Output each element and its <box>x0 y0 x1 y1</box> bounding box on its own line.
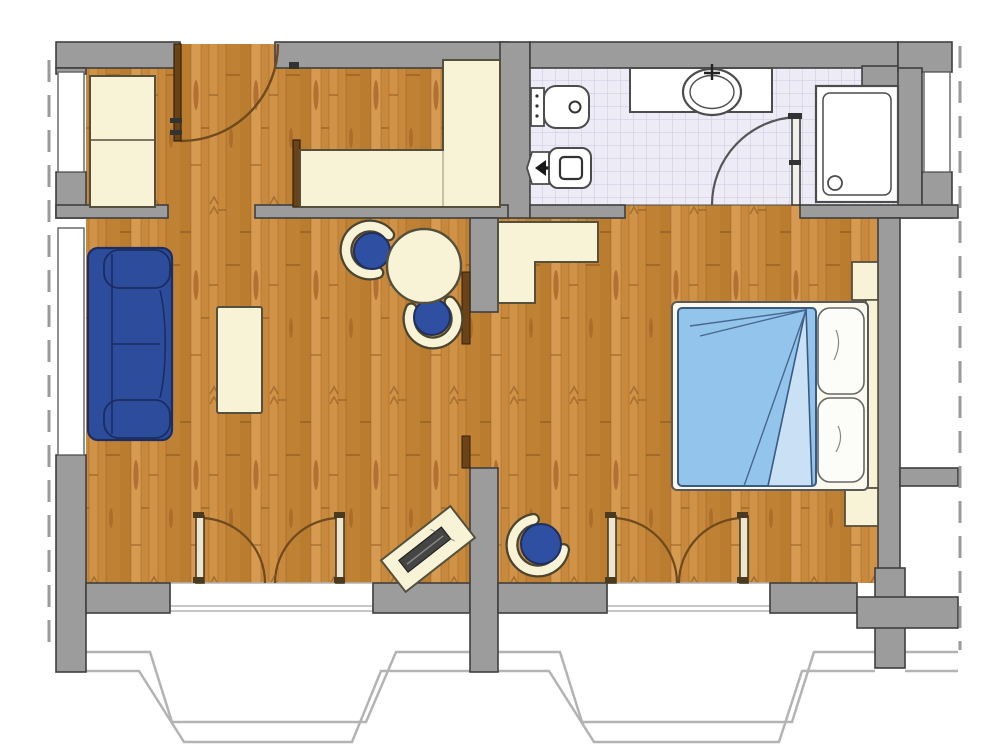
bidet <box>527 148 591 188</box>
bedroom-right-wall <box>878 218 900 600</box>
center-partition-upper-stub <box>470 218 498 312</box>
bathroom-doorway-floor <box>625 205 800 218</box>
left-window-lower <box>58 228 84 455</box>
right-bay-outer-line <box>498 652 875 722</box>
bedroom-door-left-leaf <box>608 516 616 583</box>
left-bay-outer-line <box>86 652 470 722</box>
floor-plan-page <box>0 0 1000 750</box>
sliding-leaf-lower <box>462 436 470 468</box>
vanity-counter <box>630 64 772 115</box>
neighbor-bay-lines <box>905 652 958 671</box>
toilet <box>531 86 589 128</box>
living-door-right-leaf <box>336 516 344 583</box>
living-balcony-threshold <box>170 583 373 611</box>
left-wall-lower <box>56 455 86 672</box>
bedroom-door-right-leaf <box>740 516 748 583</box>
bottom-wall-center <box>498 583 607 613</box>
pillow-top <box>818 308 864 394</box>
bottom-wall-right <box>770 583 857 613</box>
bathroom-left-wall <box>500 42 530 218</box>
top-wall-bathroom <box>530 42 898 68</box>
bay-windows <box>86 652 958 742</box>
bathroom-bottom-wall-right <box>800 205 958 218</box>
entrance-door-leaf <box>174 44 181 141</box>
round-dining-table <box>387 229 461 303</box>
shower-wall-jog <box>862 66 900 88</box>
shower-drain <box>828 176 842 190</box>
sofa-arm-bottom <box>104 400 170 438</box>
bathroom-bottom-wall-left <box>530 205 625 218</box>
headboard-step <box>852 262 878 300</box>
hall-door-frame-mark <box>289 62 299 69</box>
hall-door-leaf <box>293 140 300 207</box>
floor-plan-canvas <box>0 0 1000 750</box>
nightstand <box>845 488 878 526</box>
living-door-left-leaf <box>196 516 204 583</box>
right-side-wall-band <box>900 468 958 486</box>
right-window-upper <box>924 72 950 172</box>
bedroom-balcony-threshold <box>607 583 770 611</box>
left-window-upper <box>58 72 84 172</box>
left-bay-inner-line <box>86 671 470 742</box>
double-bed <box>672 302 868 490</box>
pillow-bottom <box>818 398 864 482</box>
right-bay-inner-line <box>498 671 875 742</box>
top-wall-left <box>56 42 180 68</box>
hall-opening-floor <box>168 205 255 218</box>
bottom-wall-center-left <box>373 583 470 613</box>
bottom-right-cross-horizontal <box>857 597 958 628</box>
sofa <box>88 248 172 440</box>
sofa-arm-top <box>104 250 170 288</box>
hall-wardrobe <box>90 76 155 207</box>
bottom-wall-left <box>86 583 170 613</box>
coffee-table <box>217 307 262 413</box>
center-partition-lower-stub <box>470 468 498 672</box>
shower-right-wall <box>898 68 922 218</box>
shower-tray <box>816 86 898 202</box>
sliding-leaf-upper <box>462 272 470 344</box>
